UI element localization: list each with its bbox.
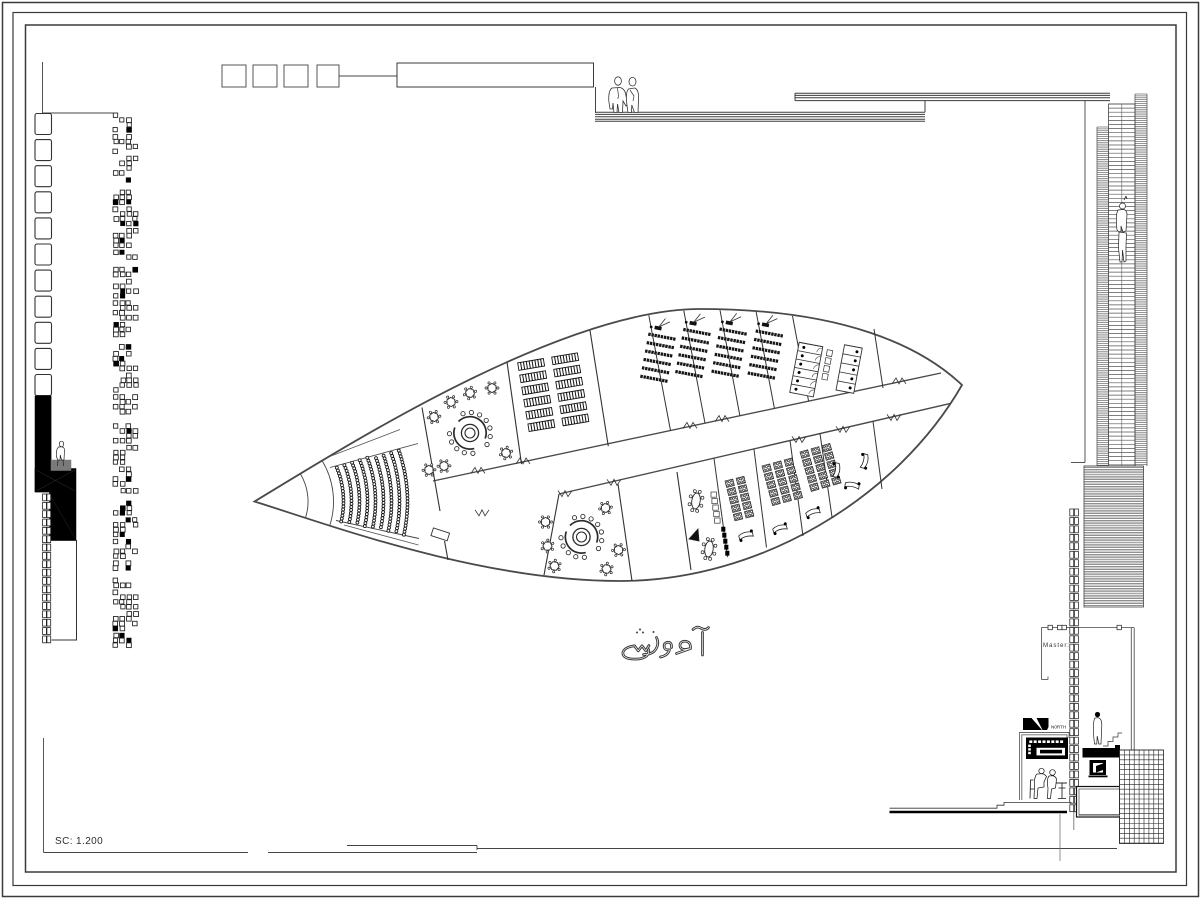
svg-text:Master:: Master: xyxy=(1043,642,1070,649)
svg-text:N0RTH: N0RTH xyxy=(1051,725,1066,730)
svg-text:SC: 1.200: SC: 1.200 xyxy=(55,836,103,847)
